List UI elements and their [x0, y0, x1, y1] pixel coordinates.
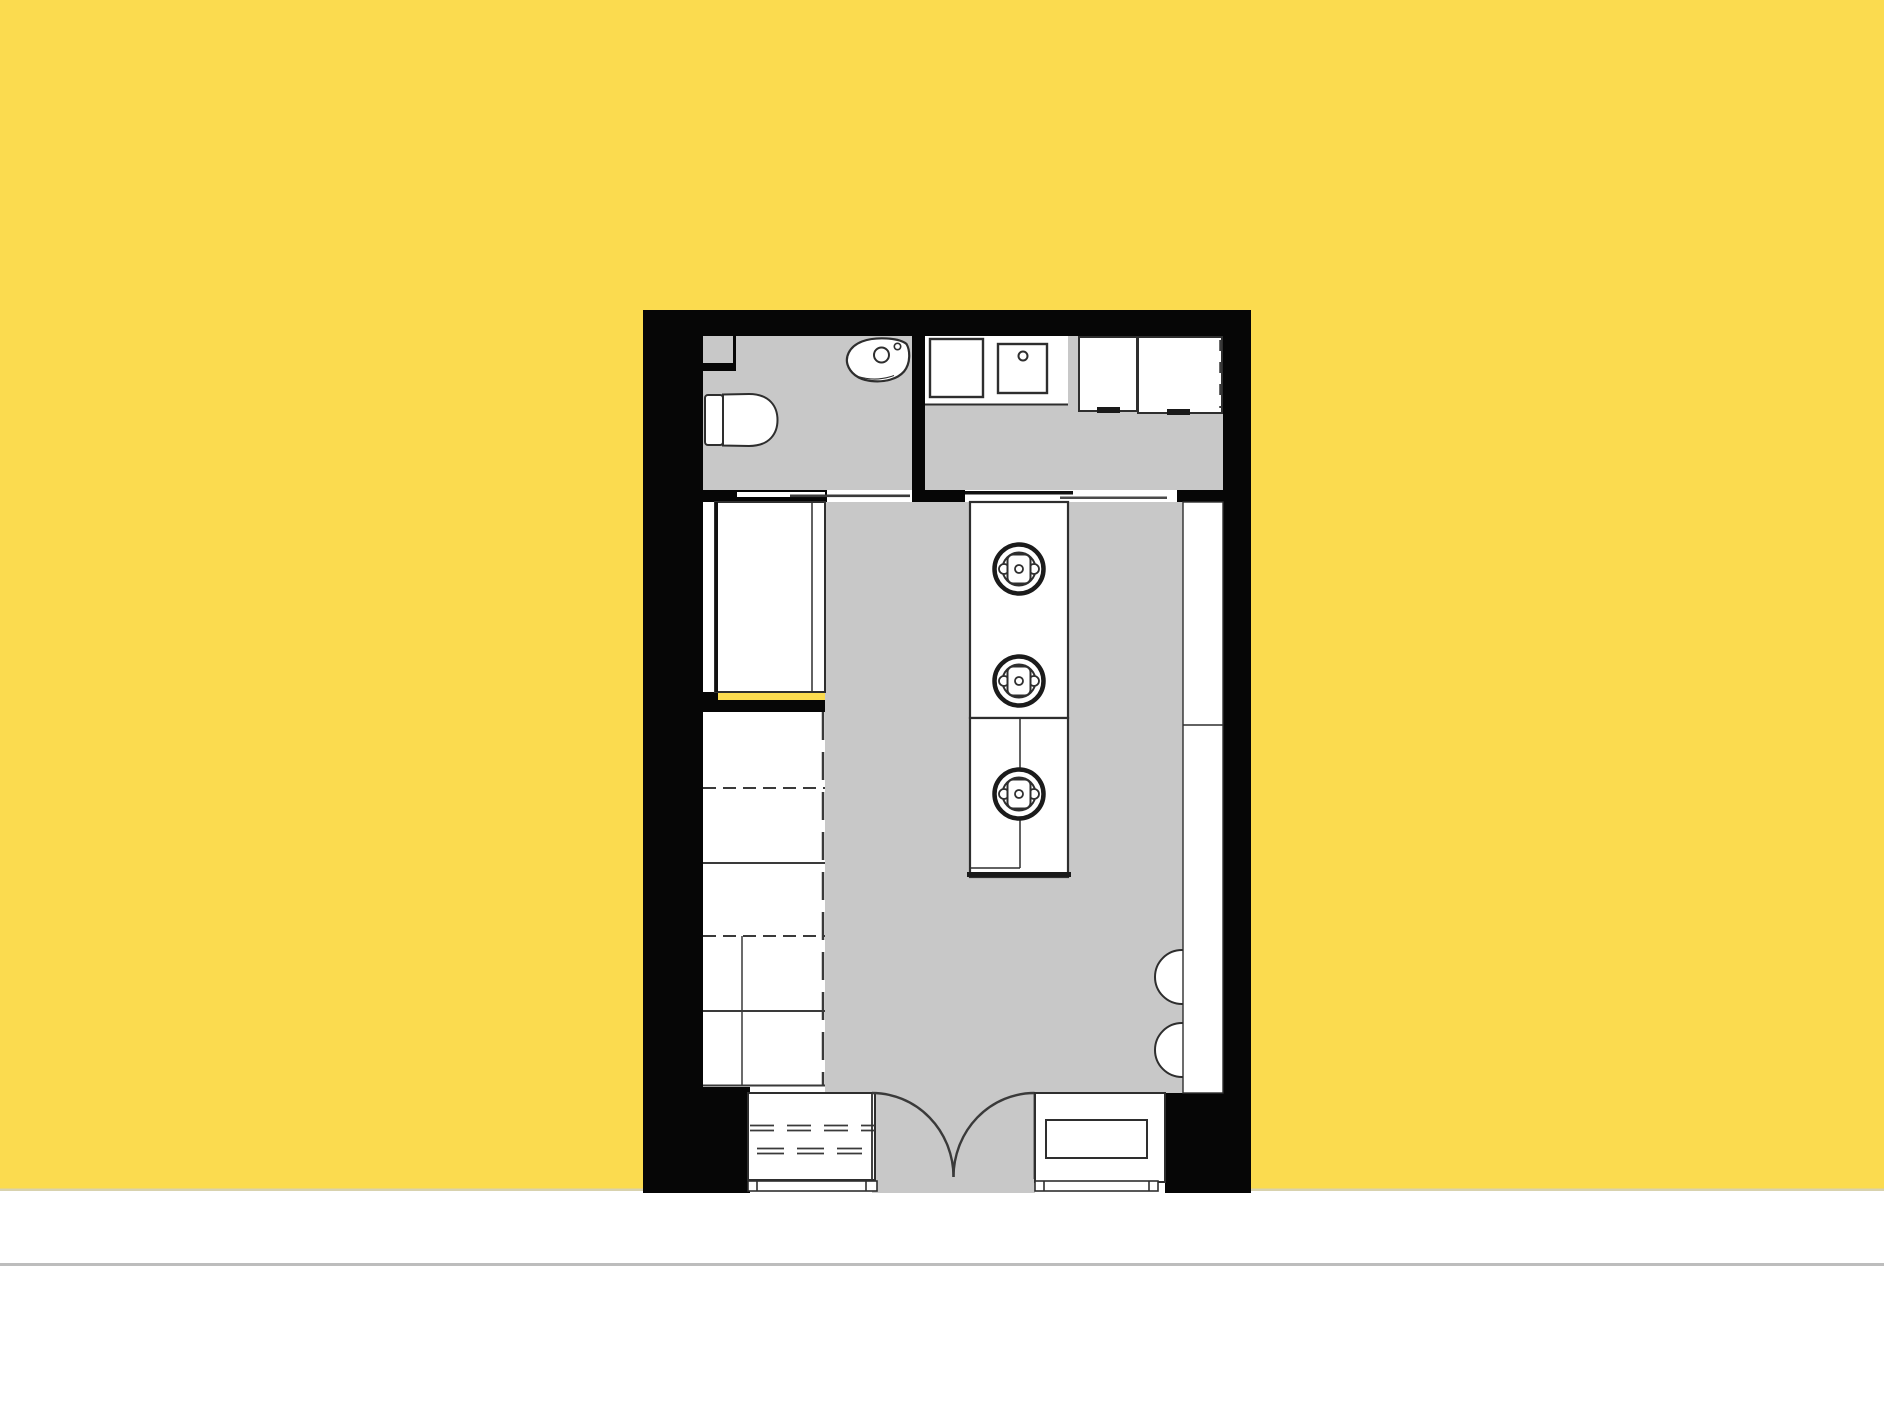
bathroom-faucet [874, 348, 889, 363]
wall-right-chunk [1177, 490, 1223, 502]
kitchen-wall-cabinet-left [1079, 337, 1137, 411]
tv-bench [1035, 1093, 1165, 1182]
island-stool-top [995, 545, 1044, 594]
kitchen-sliding-door-panel-left [965, 491, 1073, 495]
tv-bench-threshold [1035, 1181, 1158, 1191]
kitchen-sliding-door-panel-right [1060, 497, 1167, 500]
wall-bathroom-kitchen-divider [912, 336, 925, 492]
wall-bed-partition [703, 700, 825, 712]
island-stool-middle [995, 657, 1044, 706]
kitchen-wall-cabinet-right [1138, 337, 1222, 413]
kitchen-faucet-dot [1019, 352, 1028, 361]
toilet-tank [705, 395, 723, 445]
wall-top [643, 310, 1251, 336]
floor-entry-doorway [872, 1093, 1035, 1193]
cabinet-handle-right [1167, 409, 1190, 415]
wall-desk [1183, 502, 1223, 1093]
wardrobe-left-sliver [703, 502, 715, 692]
wall-bottom-left-block [643, 1087, 750, 1193]
kitchen-sink-left-basin [930, 339, 983, 397]
bathroom-sliding-door-panel [790, 495, 910, 498]
wall-bottom-right-block [1165, 1093, 1251, 1193]
floor-plan-canvas [0, 0, 1884, 1413]
lower-white-band [0, 1191, 1884, 1413]
wall-right [1223, 310, 1251, 1193]
wall-mid-chunk [912, 490, 965, 502]
page-divider-line [0, 1263, 1884, 1266]
wall-left [643, 310, 703, 1193]
wardrobe [715, 502, 825, 692]
cabinet-handle-left [1097, 407, 1120, 413]
page-background [0, 0, 1884, 1413]
shoe-cabinet [748, 1093, 875, 1180]
shoe-cabinet-threshold [748, 1181, 877, 1191]
wardrobe-left-edge [715, 502, 718, 692]
bathroom-shaft-stub [703, 363, 735, 371]
bathroom-sink-dot [894, 343, 900, 349]
island-bottom-edge [967, 872, 1071, 877]
bed [703, 712, 825, 1087]
toilet-bowl [723, 394, 778, 446]
island-stool-bottom [995, 770, 1044, 819]
